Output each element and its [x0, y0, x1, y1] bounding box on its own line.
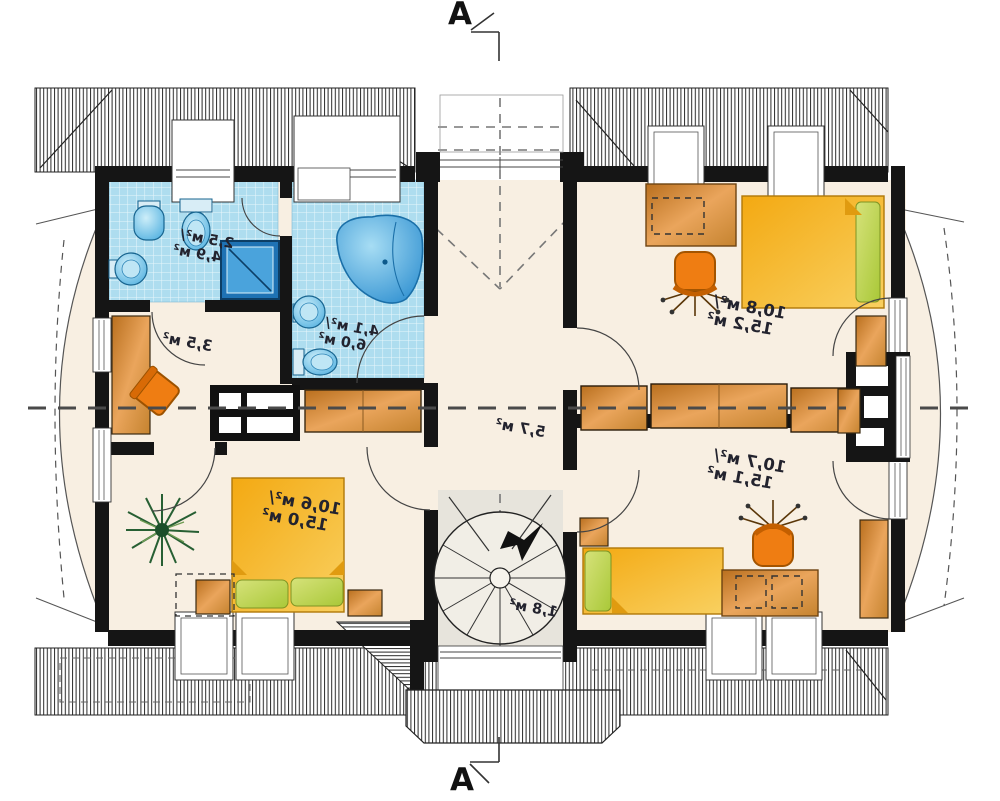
left-gable — [36, 208, 103, 624]
roof-hatch-top-right — [570, 88, 888, 172]
wardrobe — [860, 520, 888, 618]
nightstand — [196, 580, 230, 614]
plan-svg — [0, 0, 1000, 801]
bed — [583, 548, 723, 614]
shelf-unit — [210, 385, 300, 441]
floor-plan-canvas: 2,5 м²/4,9 м² 4,1 м²/6,0 м² 3,5 м² 5,7 м… — [0, 0, 1000, 801]
section-mark-top — [471, 13, 499, 61]
pillow — [236, 580, 288, 608]
chimney — [838, 352, 910, 462]
balcony-protrusion — [406, 690, 620, 743]
desk — [646, 184, 736, 246]
toilet-tank-icon — [293, 349, 304, 375]
nightstand — [348, 590, 382, 616]
section-mark-bottom — [470, 737, 499, 783]
bed — [742, 196, 884, 308]
pillow — [585, 551, 611, 611]
section-letter-top: A — [448, 0, 472, 32]
section-letter-bottom: A — [450, 762, 474, 798]
nightstand — [856, 316, 886, 366]
pillow — [291, 578, 343, 606]
toilet-tank-icon — [180, 199, 212, 212]
pillow — [856, 202, 880, 302]
